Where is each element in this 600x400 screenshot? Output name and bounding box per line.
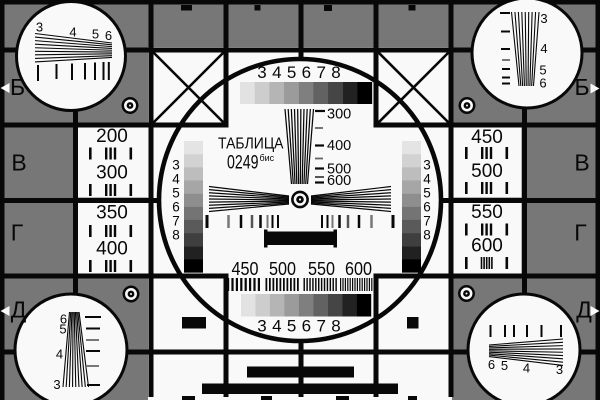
svg-text:8: 8 [423,228,431,243]
svg-text:8: 8 [172,228,180,243]
svg-text:5: 5 [287,317,296,336]
svg-text:450: 450 [232,259,259,279]
svg-text:3: 3 [257,317,266,336]
svg-text:300: 300 [327,107,351,123]
svg-text:200: 200 [96,126,128,147]
svg-text:Б: Б [10,74,25,100]
svg-text:550: 550 [471,202,503,223]
svg-text:ТАБЛИЦА: ТАБЛИЦА [218,136,284,153]
svg-text:6: 6 [423,200,431,215]
svg-text:Г: Г [11,220,24,246]
svg-text:4: 4 [272,317,281,336]
svg-text:3: 3 [257,63,266,82]
svg-text:4: 4 [56,347,63,362]
svg-text:6: 6 [105,28,112,43]
svg-text:450: 450 [471,127,503,148]
svg-text:300: 300 [96,163,128,184]
svg-text:5: 5 [59,322,66,337]
svg-text:Д: Д [11,297,27,323]
svg-text:6: 6 [172,200,180,215]
svg-text:3: 3 [53,377,60,392]
svg-text:4: 4 [172,172,180,187]
svg-text:В: В [574,150,589,176]
svg-text:В: В [11,150,26,176]
svg-text:4: 4 [69,25,76,40]
svg-text:400: 400 [96,239,128,260]
svg-text:600: 600 [327,173,351,189]
svg-text:600: 600 [471,236,503,257]
svg-text:500: 500 [471,161,503,182]
svg-text:6: 6 [302,63,311,82]
svg-text:5: 5 [172,186,180,201]
svg-text:5: 5 [423,186,431,201]
svg-text:3: 3 [540,11,547,26]
svg-text:550: 550 [308,259,335,279]
svg-text:6: 6 [302,317,311,336]
svg-text:3: 3 [172,158,180,173]
svg-text:5: 5 [287,63,296,82]
svg-text:4: 4 [272,63,281,82]
svg-text:Д: Д [576,297,592,323]
svg-text:4: 4 [540,41,547,56]
svg-text:350: 350 [96,203,128,224]
svg-text:8: 8 [331,63,340,82]
svg-text:600: 600 [345,259,372,279]
svg-text:3: 3 [556,362,563,377]
svg-text:4: 4 [423,172,431,187]
svg-text:7: 7 [316,63,325,82]
svg-text:3: 3 [423,158,431,173]
svg-text:8: 8 [331,317,340,336]
svg-text:400: 400 [327,138,351,154]
svg-text:бис: бис [260,153,275,163]
svg-text:6: 6 [539,76,546,91]
svg-text:4: 4 [523,361,530,376]
svg-text:6: 6 [488,357,495,372]
svg-text:Б: Б [574,74,589,100]
svg-text:7: 7 [423,214,431,229]
svg-text:7: 7 [172,214,180,229]
svg-text:0249: 0249 [227,153,259,174]
svg-text:500: 500 [269,259,296,279]
svg-text:5: 5 [92,27,99,42]
svg-text:3: 3 [36,20,43,35]
svg-text:Г: Г [574,220,587,246]
svg-text:7: 7 [316,317,325,336]
svg-text:5: 5 [501,358,508,373]
